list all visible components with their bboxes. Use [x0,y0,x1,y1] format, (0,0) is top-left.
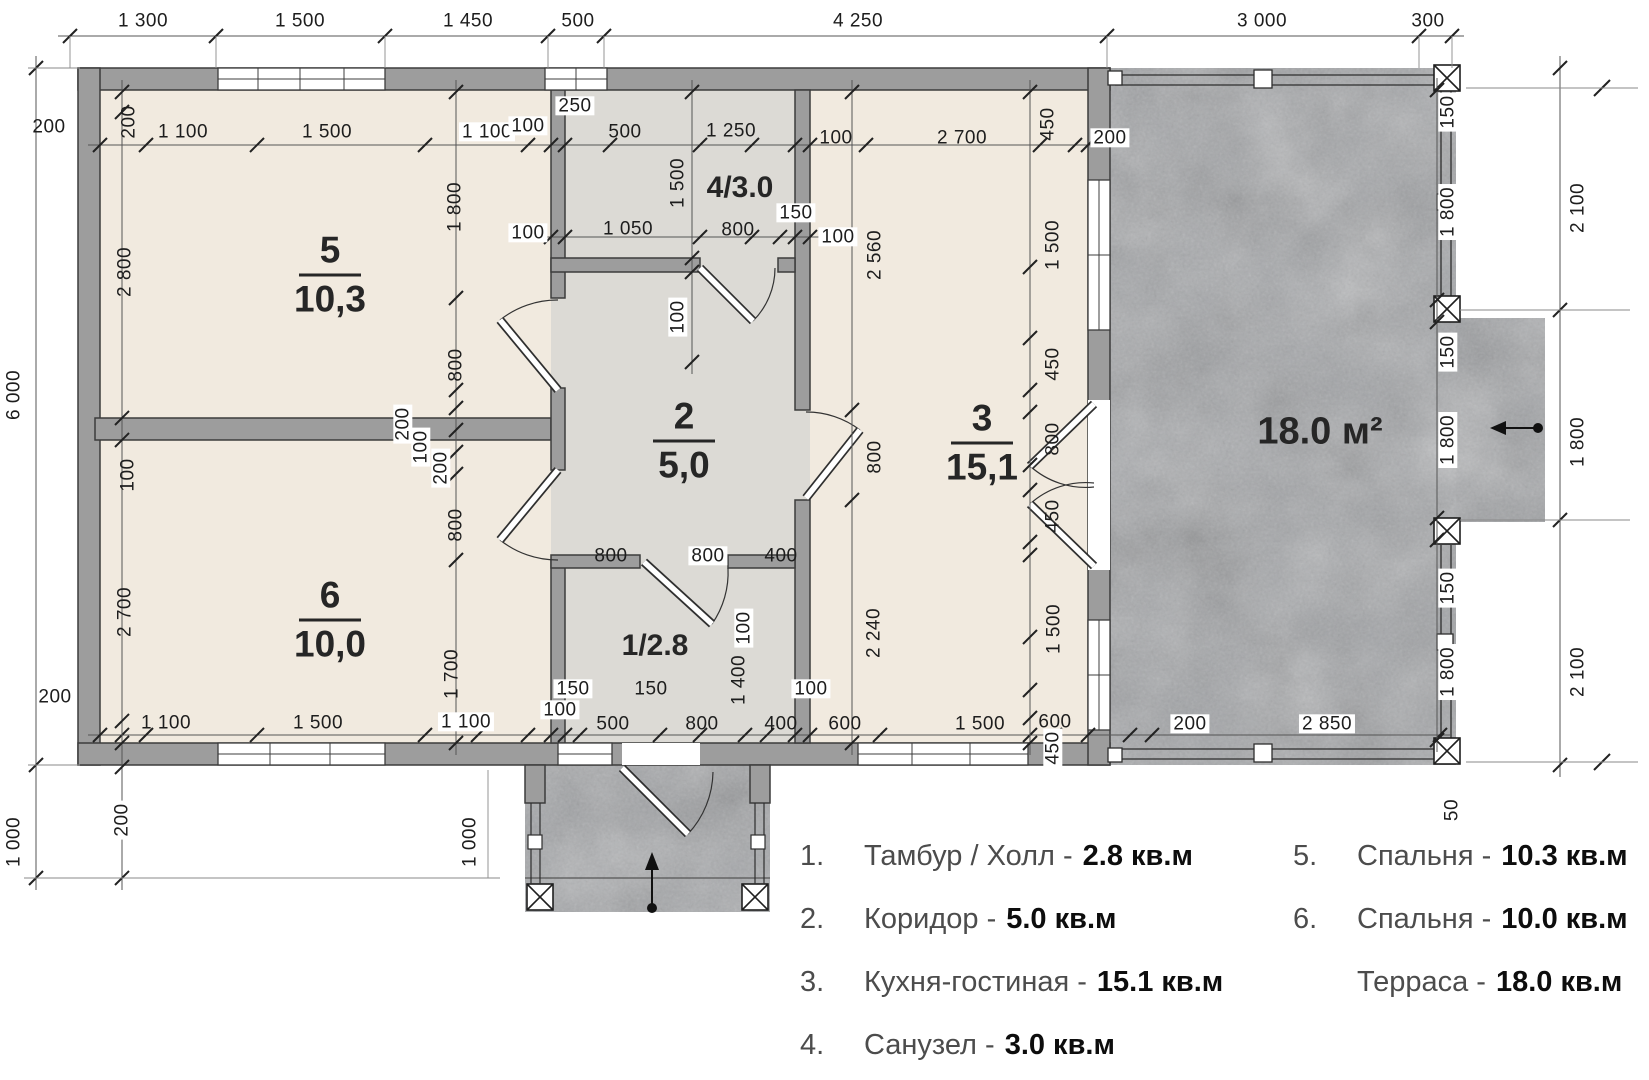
dim-label: 200 [32,117,65,136]
legend-value: 5.0 кв.м [1006,903,1116,936]
dim-label: 1 500 [275,11,325,30]
dim-label: 450 [1043,347,1062,380]
legend-number: 2. [800,903,864,936]
legend-item: 2.Коридор -5.0 кв.м [800,903,1116,936]
dim-label: 2 700 [115,587,134,637]
dim-label: 1 500 [668,158,687,208]
fraction-bar [653,440,715,443]
dim-label: 800 [721,220,754,239]
dim-label: 3 000 [1237,11,1287,30]
dim-label: 800 [688,546,727,565]
legend-label: Терраса - [1357,966,1486,999]
legend-value: 18.0 кв.м [1496,966,1622,999]
dim-label: 1 000 [460,817,479,867]
dim-label: 2 850 [1299,714,1355,733]
legend-label: Санузел - [864,1029,995,1062]
dim-label: 1 100 [459,122,515,141]
dim-label: 200 [1090,128,1129,147]
dim-label: 800 [685,714,718,733]
dim-label: 100 [668,297,687,336]
dim-label: 200 [38,687,71,706]
terrace-step-floor [1456,318,1545,522]
dim-label: 200 [431,448,450,487]
room-number: 2 [653,396,715,438]
legend-value: 2.8 кв.м [1083,840,1193,873]
room-area: 15,1 [946,447,1018,489]
dim-label: 1 800 [1438,412,1457,468]
room-label: 25,0 [653,396,715,487]
dim-label: 150 [634,679,667,698]
dim-label: 50 [1442,796,1461,824]
dim-label: 1 100 [141,713,191,732]
dim-label: 500 [596,714,629,733]
dim-label: 1 500 [1044,604,1063,654]
dim-label: 150 [1438,332,1457,371]
legend-number: 3. [800,966,864,999]
dim-label: 600 [1038,712,1071,731]
fraction-bar [299,274,361,277]
dim-label: 100 [818,227,857,246]
dim-label: 400 [764,546,797,565]
legend-value: 3.0 кв.м [1005,1029,1115,1062]
legend-label: Тамбур / Холл - [864,840,1073,873]
legend-item: Терраса -18.0 кв.м [1293,966,1622,999]
room-label: 610,0 [294,575,366,666]
dim-label: 2 800 [115,247,134,297]
legend-item: 4.Санузел -3.0 кв.м [800,1029,1115,1062]
dim-label: 1 800 [1438,184,1457,240]
dim-label: 800 [446,508,465,541]
dim-label: 1 250 [706,121,756,140]
legend-label: Кухня-гостиная - [864,966,1087,999]
dim-label: 1 450 [443,11,493,30]
dim-label: 1 800 [1568,417,1587,467]
dim-label: 1 100 [438,712,494,731]
dim-label: 4 250 [833,11,883,30]
dim-label: 1 500 [293,713,343,732]
room-label: 18.0 м² [1257,411,1382,454]
dim-label: 800 [865,440,884,473]
room-label: 315,1 [946,398,1018,489]
dim-label: 100 [540,700,579,719]
dim-label: 450 [1038,107,1057,140]
dim-label: 1 100 [158,122,208,141]
dim-label: 200 [112,800,131,839]
room-floors [100,90,1088,743]
dim-label: 800 [594,546,627,565]
room-label: 4/3.0 [707,171,774,205]
dim-label: 1 700 [442,649,461,699]
room-area: 5,0 [653,445,715,487]
fraction-bar [299,619,361,622]
dim-label: 100 [411,427,430,466]
legend-value: 10.3 кв.м [1501,840,1627,873]
legend-number: 1. [800,840,864,873]
dim-label: 1 050 [603,219,653,238]
dim-label: 500 [561,11,594,30]
dim-label: 800 [446,348,465,381]
room-label: 1/2.8 [622,629,689,663]
legend-item: 6.Спальня -10.0 кв.м [1293,903,1628,936]
legend-number: 4. [800,1029,864,1062]
dim-label: 150 [1438,92,1457,131]
dim-label: 100 [118,458,137,491]
legend-item: 5.Спальня -10.3 кв.м [1293,840,1628,873]
dim-label: 400 [764,714,797,733]
room-number: 6 [294,575,366,617]
room-number: 3 [946,398,1018,440]
dim-label: 450 [1043,499,1062,532]
legend-label: Коридор - [864,903,996,936]
dim-label: 150 [1438,568,1457,607]
dim-label: 1 500 [1043,220,1062,270]
dim-label: 1 500 [955,714,1005,733]
dim-label: 100 [508,116,547,135]
dim-label: 2 560 [865,230,884,280]
room-number: 5 [294,230,366,272]
floor-plan-canvas: 1 3001 5001 4505004 2503 0003002002001 1… [0,0,1649,1080]
dim-label: 500 [608,122,641,141]
dim-label: 200 [119,105,138,138]
legend-value: 10.0 кв.м [1501,903,1627,936]
legend-number: 6. [1293,903,1357,936]
dim-label: 2 100 [1568,183,1587,233]
dim-label: 2 240 [864,608,883,658]
dim-label: 150 [553,679,592,698]
dim-label: 2 700 [937,128,987,147]
legend-label: Спальня - [1357,840,1491,873]
dim-label: 100 [508,223,547,242]
legend-value: 15.1 кв.м [1097,966,1223,999]
dim-label: 1 800 [445,182,464,232]
dim-label: 1 800 [1438,644,1457,700]
dim-label: 250 [555,96,594,115]
legend-number: 5. [1293,840,1357,873]
legend-label: Спальня - [1357,903,1491,936]
dim-label: 100 [819,128,852,147]
dim-label: 150 [776,203,815,222]
dim-label: 1 000 [4,817,23,867]
dim-label: 1 300 [118,11,168,30]
porch-floor [525,765,770,912]
room-area: 10,3 [294,279,366,321]
legend-item: 3.Кухня-гостиная -15.1 кв.м [800,966,1223,999]
legend-number [1293,966,1357,999]
dim-label: 600 [828,714,861,733]
dim-label: 800 [1043,422,1062,455]
dim-label: 6 000 [4,370,23,420]
dim-label: 200 [1170,714,1209,733]
dim-label: 1 400 [729,655,748,705]
room-area: 10,0 [294,624,366,666]
room-label: 510,3 [294,230,366,321]
dim-label: 2 100 [1568,647,1587,697]
fraction-bar [951,442,1013,445]
dim-label: 1 500 [302,122,352,141]
dim-label: 100 [734,608,753,647]
dim-label: 300 [1411,11,1444,30]
dim-label: 450 [1043,728,1062,767]
dim-label: 100 [791,679,830,698]
legend-item: 1.Тамбур / Холл -2.8 кв.м [800,840,1193,873]
